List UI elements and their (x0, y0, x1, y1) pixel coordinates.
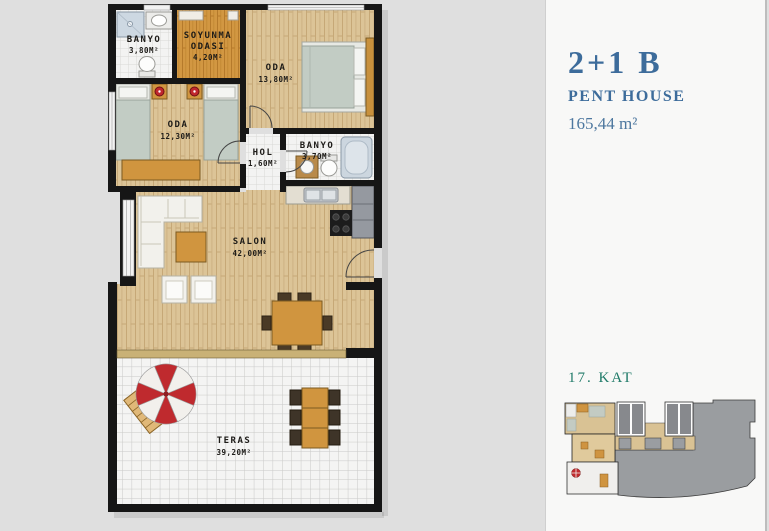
room-area-teras: 39,20M² (216, 448, 251, 457)
keyplan-shaft-boxes (619, 438, 685, 449)
twin-bed-icon (204, 84, 238, 160)
floor-label: 17. KAT (568, 370, 634, 387)
terrace-threshold (117, 350, 346, 358)
armchair-icon (191, 276, 216, 303)
floor-plan-page: BANYO 3,80M² SOYUNMA ODASI 4,20M² ODA 13… (0, 0, 769, 531)
room-label-soyunma-2: ODASI (191, 42, 226, 52)
keyplan-terrace (567, 462, 618, 494)
toilet-icon (139, 57, 155, 78)
plan-shadow-right (382, 10, 388, 516)
room-area-hol: 1,60M² (248, 159, 278, 168)
twin-bed-icon (116, 84, 150, 160)
room-area-banyo-mid: 3,70M² (302, 152, 332, 161)
nightstand-lamp-icon (187, 84, 202, 99)
refrigerator-icon (352, 186, 374, 238)
room-area-soyunma: 4,20M² (193, 53, 223, 62)
bathtub-icon (341, 137, 372, 178)
nightstand-lamp-icon (152, 84, 167, 99)
room-area-banyo-top: 3,80M² (129, 46, 159, 55)
keyplan-core-block (617, 402, 645, 436)
unit-title-block: 2+1 B PENT HOUSE 165,44 m² (568, 46, 685, 134)
terrace-table-icon (290, 388, 340, 448)
room-area-oda-big: 13,80M² (258, 75, 293, 84)
info-panel: 2+1 B PENT HOUSE 165,44 m² 17. KAT (545, 0, 767, 531)
shower-icon (117, 12, 144, 37)
unit-area: 165,44 m² (568, 114, 685, 134)
umbrella-icon (136, 364, 196, 424)
unit-subtitle: PENT HOUSE (568, 88, 685, 106)
stove-icon (330, 210, 352, 236)
keyplan-highlighted-unit (565, 403, 618, 494)
kitchen-counter-icon (286, 186, 350, 204)
room-label-oda-small: ODA (168, 120, 189, 130)
room-label-teras: TERAS (217, 436, 252, 446)
room-label-soyunma: SOYUNMA (184, 31, 232, 41)
double-bed-icon (302, 38, 374, 116)
coffee-table-icon (176, 232, 206, 262)
dresser-icon (122, 160, 200, 180)
keyplan-core-block (665, 402, 693, 436)
plan-shadow-bottom (114, 512, 384, 518)
unit-title: 2+1 B (568, 46, 685, 78)
key-plan (561, 398, 757, 504)
room-area-salon: 42,00M² (232, 249, 267, 258)
sink-icon (146, 12, 172, 29)
floor-plan: BANYO 3,80M² SOYUNMA ODASI 4,20M² ODA 13… (0, 0, 529, 531)
room-area-oda-small: 12,30M² (160, 132, 195, 141)
armchair-icon (162, 276, 187, 303)
room-label-salon: SALON (233, 237, 268, 247)
room-label-banyo-top: BANYO (127, 35, 162, 45)
room-label-oda-big: ODA (266, 63, 287, 73)
room-label-hol: HOL (253, 148, 274, 158)
plan-area: BANYO 3,80M² SOYUNMA ODASI 4,20M² ODA 13… (0, 0, 545, 531)
room-label-banyo-mid: BANYO (300, 141, 335, 151)
dining-table-icon (262, 293, 332, 353)
